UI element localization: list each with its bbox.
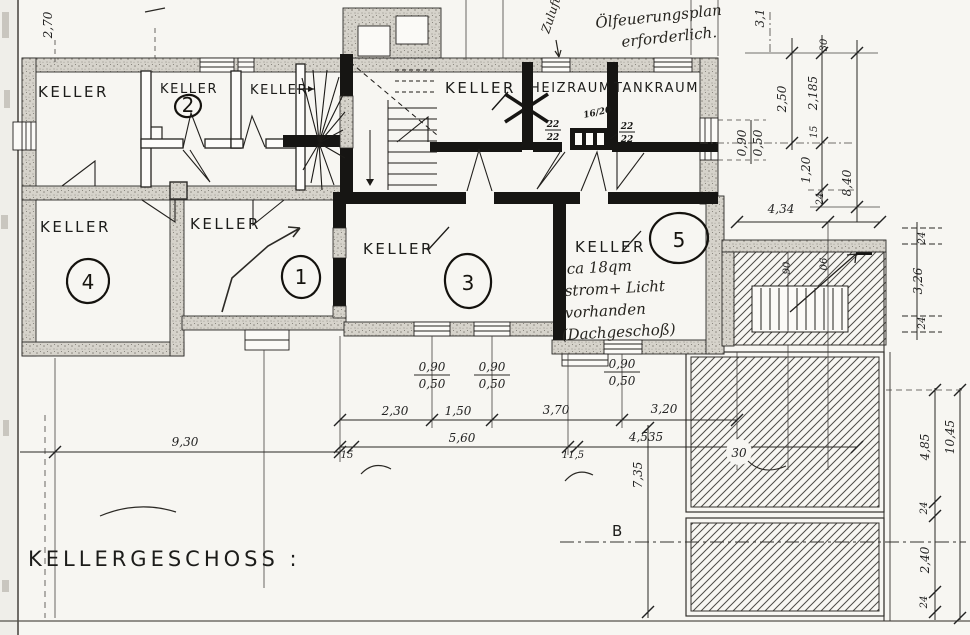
dim-240: 2,40 — [918, 546, 932, 574]
win1-top: 0,90 — [419, 360, 446, 374]
room5-note-line1: ca 18qm — [566, 257, 632, 278]
dim-120: 1,20 — [799, 156, 813, 183]
dim-326: 3,26 — [911, 267, 925, 294]
room-number-3: 3 — [462, 271, 475, 295]
dim-370: 3,70 — [543, 403, 570, 417]
room-label-keller-top-left: KELLER — [38, 83, 109, 101]
dim-31: 3,1 — [753, 8, 767, 27]
dim-90-stair: 90 — [782, 261, 793, 274]
dim-115: 11,5 — [562, 450, 584, 461]
room-label-keller-1: KELLER — [190, 215, 261, 233]
floorplan-scan: KELLER KELLER KELLER KELLER HEIZRAUM TAN… — [0, 0, 970, 635]
dim-2185: 2,185 — [806, 76, 820, 111]
win3-bottom: 0,50 — [609, 374, 636, 388]
dim-24-b: 24 — [917, 317, 928, 331]
dim-485: 4,85 — [918, 434, 932, 462]
win1-bottom: 0,50 — [419, 377, 446, 391]
flue-b-top: 22 — [620, 122, 634, 132]
dim-24-right: 24 — [815, 193, 826, 207]
dim-320: 3,20 — [651, 402, 678, 416]
room-label-keller-mid: KELLER — [445, 79, 516, 97]
dim-560: 5,60 — [449, 431, 476, 445]
win2-top: 0,90 — [479, 360, 506, 374]
flue-a-top: 22 — [546, 120, 560, 130]
dim-930: 9,30 — [172, 435, 199, 449]
room-number-4: 4 — [82, 270, 95, 294]
section-marker-b: B — [612, 522, 625, 540]
win-right-bottom: 0,50 — [751, 129, 765, 156]
basement-floorplan-drawing: KELLER KELLER KELLER KELLER HEIZRAUM TAN… — [0, 0, 970, 635]
room-label-keller-5: KELLER — [575, 238, 646, 256]
win3-top: 0,90 — [609, 357, 636, 371]
flue-a-bottom: 22 — [546, 133, 560, 143]
dim-840: 8,40 — [840, 169, 854, 196]
win2-bottom: 0,50 — [479, 377, 506, 391]
dim-1045: 10,45 — [943, 420, 957, 454]
dim-230: 2,30 — [381, 404, 409, 418]
drawing-title: KELLERGESCHOSS : — [28, 547, 301, 571]
dim-735: 7,35 — [631, 462, 645, 489]
dim-30-hatch: 30 — [731, 446, 747, 460]
dim-30-top: 30 — [819, 38, 830, 51]
dim-24-a: 24 — [917, 232, 928, 246]
room-label-keller-3: KELLER — [363, 240, 434, 258]
room-label-keller-stairs: KELLER — [250, 83, 308, 98]
dim-250: 2,50 — [775, 85, 789, 113]
room-label-tankraum: TANKRAUM — [613, 81, 699, 96]
dim-15: 15 — [341, 450, 354, 461]
room-number-1: 1 — [295, 265, 308, 289]
room-label-heizraum: HEIZRAUM — [530, 81, 612, 96]
chimney-block — [570, 128, 612, 150]
dim-150: 1,50 — [445, 404, 472, 418]
win-right-top: 0,90 — [735, 129, 749, 156]
dim-434: 4,34 — [767, 202, 795, 216]
room-number-5: 5 — [673, 228, 686, 252]
dim-24-c: 24 — [919, 502, 930, 516]
dim-15-right: 15 — [809, 126, 820, 139]
dim-06-stair: 06 — [819, 257, 830, 270]
room-label-keller-4: KELLER — [40, 218, 111, 236]
dim-4535: 4,535 — [628, 430, 663, 444]
room-number-2: 2 — [182, 93, 195, 117]
scan-margin-noise — [0, 0, 17, 635]
dim-270: 2,70 — [41, 11, 55, 39]
dim-24-d: 24 — [919, 596, 930, 610]
flue-b-bottom: 22 — [620, 135, 634, 145]
